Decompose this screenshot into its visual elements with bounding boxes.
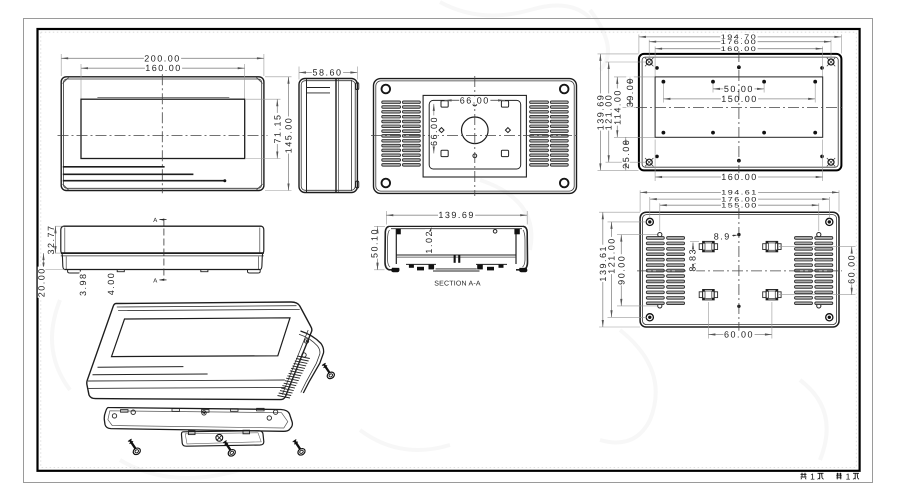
svg-text:8.83: 8.83 <box>687 248 697 272</box>
svg-text:145.00: 145.00 <box>284 117 294 154</box>
svg-text:3.98: 3.98 <box>78 272 88 296</box>
svg-text:8.9: 8.9 <box>714 232 731 242</box>
svg-text:SECTION A-A: SECTION A-A <box>434 281 481 288</box>
svg-text:58.60: 58.60 <box>312 68 342 78</box>
svg-text:90.00: 90.00 <box>616 255 626 285</box>
svg-text:176.00: 176.00 <box>721 38 758 45</box>
svg-text:20.00: 20.00 <box>37 267 47 297</box>
svg-text:155.00: 155.00 <box>721 202 758 209</box>
svg-text:1.02: 1.02 <box>424 230 434 254</box>
svg-text:121.00: 121.00 <box>607 237 617 274</box>
svg-text:1: 1 <box>846 472 851 482</box>
svg-text:1: 1 <box>810 472 815 482</box>
svg-text:160.00: 160.00 <box>721 172 758 182</box>
svg-text:32.77: 32.77 <box>46 224 56 254</box>
svg-text:A: A <box>153 217 157 224</box>
svg-text:66.00: 66.00 <box>460 95 490 105</box>
svg-text:139.69: 139.69 <box>438 210 475 220</box>
svg-text:160.00: 160.00 <box>145 63 182 73</box>
svg-text:150.00: 150.00 <box>721 94 758 104</box>
svg-text:60.00: 60.00 <box>847 254 857 284</box>
svg-text:60.00: 60.00 <box>724 330 754 340</box>
svg-text:114.00: 114.00 <box>612 89 622 125</box>
svg-text:A: A <box>153 278 157 285</box>
svg-text:200.00: 200.00 <box>144 53 181 63</box>
svg-text:71.15: 71.15 <box>272 113 282 143</box>
svg-text:4.00: 4.00 <box>106 272 116 296</box>
svg-text:66.00: 66.00 <box>429 116 439 146</box>
